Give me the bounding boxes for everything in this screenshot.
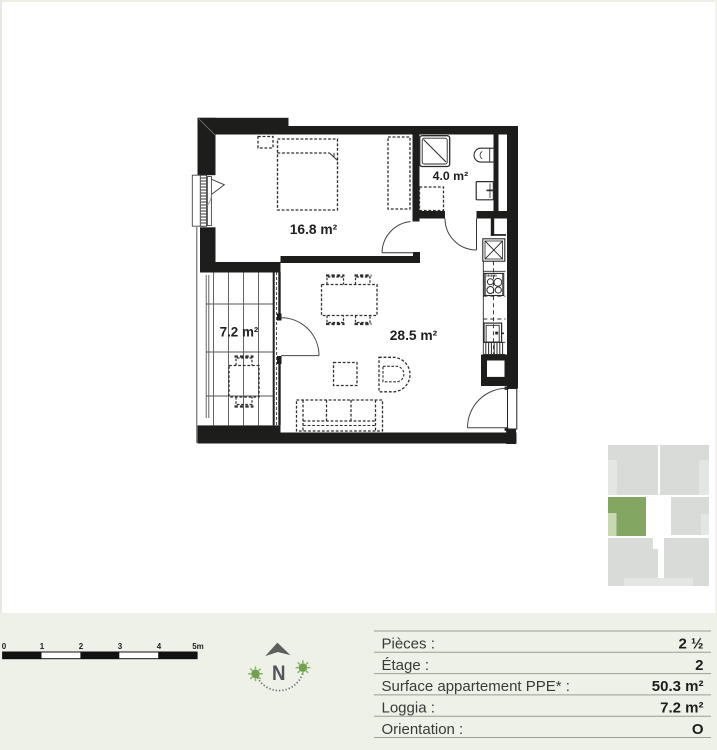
svg-text:3: 3 — [118, 642, 123, 651]
svg-text:1: 1 — [40, 642, 45, 651]
svg-text:2: 2 — [695, 657, 703, 674]
svg-text:Pièces :: Pièces : — [382, 636, 435, 653]
svg-text:7.2 m²: 7.2 m² — [660, 700, 703, 717]
svg-text:2: 2 — [79, 642, 84, 651]
svg-text:0: 0 — [2, 642, 7, 651]
svg-text:28.5 m²: 28.5 m² — [390, 328, 438, 343]
svg-text:Étage :: Étage : — [382, 657, 430, 674]
svg-text:O: O — [692, 721, 704, 738]
svg-text:Orientation :: Orientation : — [382, 721, 464, 738]
svg-text:4.0 m²: 4.0 m² — [433, 169, 469, 183]
svg-text:5m: 5m — [192, 642, 204, 651]
svg-text:Loggia :: Loggia : — [382, 700, 435, 717]
svg-text:Surface appartement PPE* :: Surface appartement PPE* : — [382, 678, 570, 695]
svg-text:4: 4 — [157, 642, 162, 651]
svg-text:N: N — [272, 661, 286, 685]
svg-text:2 ½: 2 ½ — [678, 636, 703, 653]
svg-text:50.3 m²: 50.3 m² — [652, 678, 704, 695]
svg-text:7.2 m²: 7.2 m² — [220, 324, 259, 339]
svg-text:16.8 m²: 16.8 m² — [290, 222, 338, 237]
